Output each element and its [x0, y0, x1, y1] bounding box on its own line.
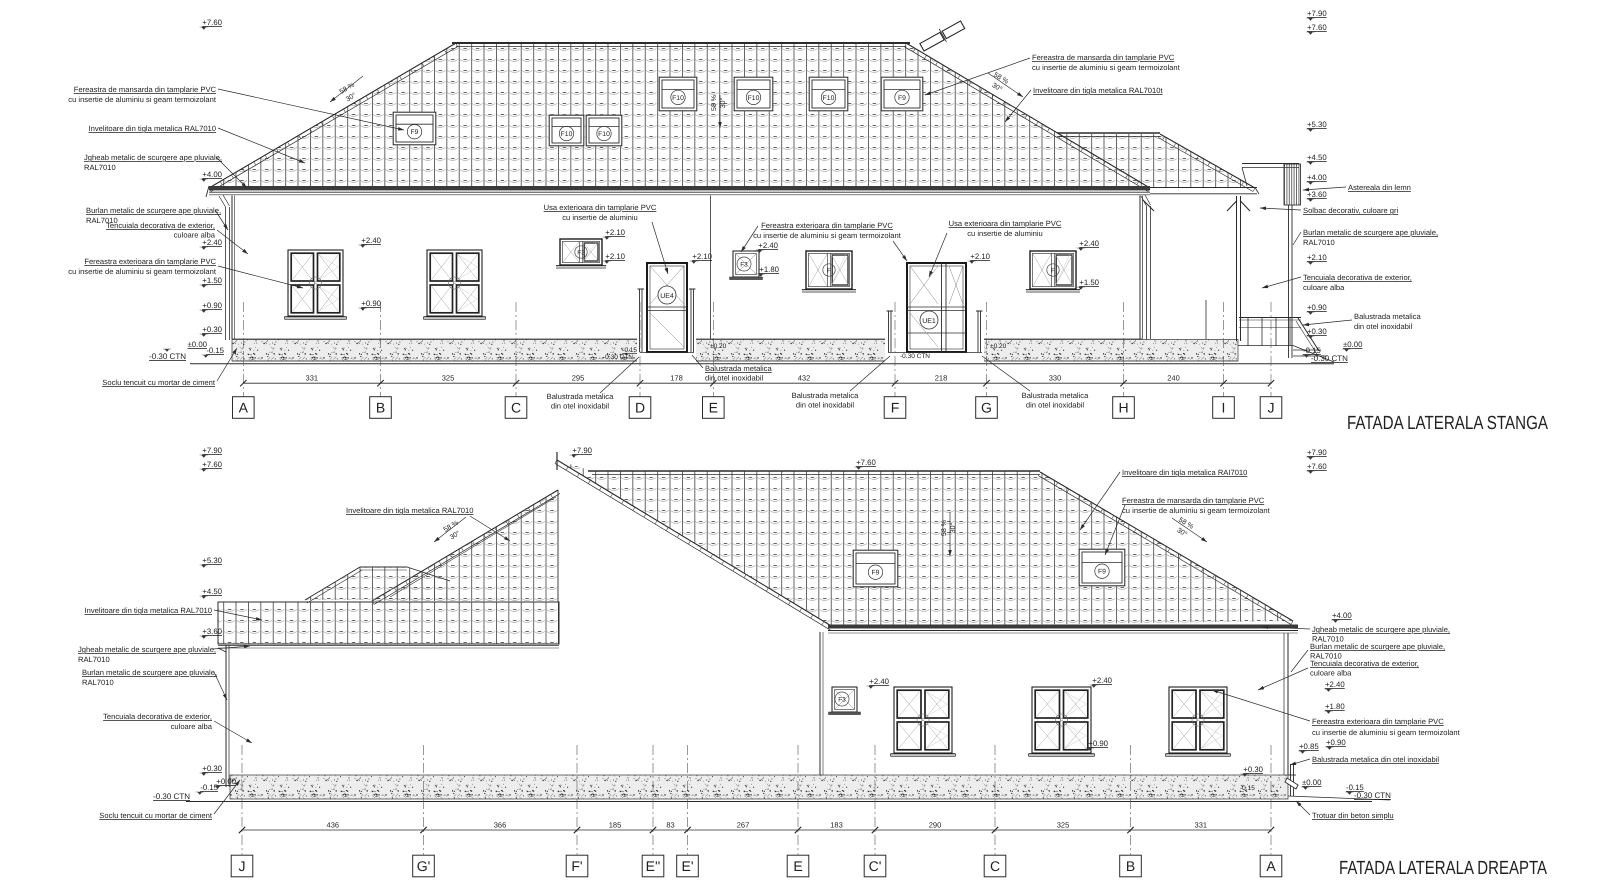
svg-text:-0.30 CTN: -0.30 CTN	[1354, 791, 1391, 800]
svg-text:-0.15: -0.15	[206, 346, 224, 355]
svg-text:+7.60: +7.60	[202, 460, 222, 469]
svg-text:Invelitoare din tigla metalica: Invelitoare din tigla metalica RAL7010	[89, 124, 216, 133]
svg-text:+4.50: +4.50	[202, 587, 222, 596]
svg-text:cu insertie de aluminiu si gea: cu insertie de aluminiu si geam termoizo…	[1032, 63, 1181, 72]
svg-text:F: F	[891, 400, 900, 416]
svg-text:-0.30 CTN: -0.30 CTN	[153, 792, 190, 801]
svg-text:+2.40: +2.40	[869, 677, 889, 686]
svg-text:Trotuar din beton simplu: Trotuar din beton simplu	[1312, 811, 1394, 820]
svg-text:Fereastra de mansarda din tamp: Fereastra de mansarda din tamplarie PVC	[1122, 496, 1265, 505]
svg-text:+4.00: +4.00	[1332, 611, 1352, 620]
svg-text:+3.60: +3.60	[1307, 190, 1327, 199]
svg-text:331: 331	[306, 374, 319, 383]
svg-text:Burlan metalic de scurgere ape: Burlan metalic de scurgere ape pluviale,	[1310, 642, 1445, 651]
svg-text:+0.30: +0.30	[1307, 327, 1327, 336]
svg-text:-0.30 CTN: -0.30 CTN	[1311, 354, 1348, 363]
svg-text:183: 183	[830, 821, 843, 830]
svg-text:B: B	[1126, 858, 1135, 874]
svg-text:+7.60: +7.60	[202, 18, 222, 27]
svg-text:218: 218	[935, 374, 948, 383]
svg-text:E: E	[709, 400, 718, 416]
svg-text:+0.85: +0.85	[1299, 742, 1319, 751]
svg-text:Balustrada metalica din otel i: Balustrada metalica din otel inoxidabil	[1312, 755, 1439, 764]
svg-text:Balustrada metalica: Balustrada metalica	[1354, 312, 1421, 321]
svg-text:cu insertie de aluminiu si gea: cu insertie de aluminiu si geam termoizo…	[1122, 506, 1271, 515]
svg-text:+4.50: +4.50	[1307, 153, 1327, 162]
svg-text:din otel inoxidabil: din otel inoxidabil	[1354, 322, 1413, 331]
svg-text:E': E'	[681, 858, 693, 874]
svg-text:-0.15: -0.15	[200, 783, 218, 792]
svg-text:F: F	[921, 717, 925, 724]
svg-text:+2.40: +2.40	[1092, 676, 1112, 685]
svg-text:RAL7010: RAL7010	[1303, 238, 1335, 247]
svg-text:RAL7010: RAL7010	[78, 655, 110, 664]
svg-text:cu insertie de aluminiu si gea: cu insertie de aluminiu si geam termoizo…	[753, 231, 902, 240]
svg-text:Fereastra exterioara din tampl: Fereastra exterioara din tamplarie PVC	[761, 221, 893, 230]
svg-text:Balustrada metalica: Balustrada metalica	[705, 364, 772, 373]
svg-text:cu insertie de aluminiu si gea: cu insertie de aluminiu si geam termoizo…	[1312, 728, 1461, 737]
svg-text:331: 331	[1195, 821, 1208, 830]
svg-text:B: B	[376, 400, 385, 416]
svg-text:-0.30 CTN: -0.30 CTN	[149, 352, 186, 361]
svg-text:+0.90: +0.90	[202, 301, 222, 310]
svg-text:F: F	[1196, 717, 1200, 724]
svg-text:Balustrada metalica: Balustrada metalica	[1022, 391, 1089, 400]
svg-text:F: F	[453, 280, 457, 287]
svg-text:cu insertie de aluminiu: cu insertie de aluminiu	[967, 229, 1043, 238]
svg-text:G': G'	[417, 858, 431, 874]
svg-text:+1.50: +1.50	[202, 276, 222, 285]
svg-text:H: H	[1118, 400, 1128, 416]
svg-text:185: 185	[609, 821, 622, 830]
svg-text:F: F	[1060, 717, 1064, 724]
svg-text:Invelitoare din tigla metalica: Invelitoare din tigla metalica RAL7010	[346, 506, 473, 515]
svg-text:Tencuiala decorativa de exteri: Tencuiala decorativa de exterior,	[103, 712, 212, 721]
svg-text:din otel inoxidabil: din otel inoxidabil	[1026, 401, 1085, 410]
svg-text:240: 240	[1167, 374, 1180, 383]
svg-text:+2.10: +2.10	[1307, 253, 1327, 262]
svg-text:J: J	[239, 858, 246, 874]
svg-text:Solbac decorativ, culoare gri: Solbac decorativ, culoare gri	[1303, 206, 1399, 215]
svg-text:Burlan metalic de scurgere ape: Burlan metalic de scurgere ape pluviale,	[1303, 228, 1438, 237]
svg-text:C: C	[990, 858, 1000, 874]
svg-text:F10: F10	[672, 95, 684, 102]
svg-text:+5.30: +5.30	[202, 556, 222, 565]
svg-text:325: 325	[1057, 821, 1070, 830]
svg-text:+2.10: +2.10	[605, 228, 625, 237]
svg-text:UE1: UE1	[922, 318, 936, 325]
svg-text:-0.30 CTN: -0.30 CTN	[900, 353, 930, 360]
svg-text:+3.60: +3.60	[202, 627, 222, 636]
svg-text:C: C	[511, 400, 521, 416]
svg-text:+7.90: +7.90	[572, 446, 592, 455]
svg-text:Fereastra de mansarda din tamp: Fereastra de mansarda din tamplarie PVC	[1032, 53, 1175, 62]
svg-text:295: 295	[572, 374, 585, 383]
svg-text:RAL7010: RAL7010	[84, 163, 116, 172]
svg-text:+1.80: +1.80	[759, 265, 779, 274]
svg-text:Tencuiala decorativa de exteri: Tencuiala decorativa de exterior,	[1310, 659, 1419, 668]
svg-text:+0.30: +0.30	[202, 764, 222, 773]
svg-text:Soclu tencuit cu mortar de cim: Soclu tencuit cu mortar de ciment	[99, 811, 213, 820]
svg-text:F9: F9	[898, 95, 906, 102]
svg-text:Astereala din lemn: Astereala din lemn	[1348, 183, 1411, 192]
svg-text:+7.90: +7.90	[1307, 9, 1327, 18]
svg-text:-0.15: -0.15	[622, 347, 637, 354]
svg-text:F10: F10	[561, 131, 573, 138]
svg-text:F3: F3	[740, 262, 748, 269]
svg-text:+4.00: +4.00	[1307, 173, 1327, 182]
svg-text:FATADA LATERALA DREAPTA: FATADA LATERALA DREAPTA	[1339, 858, 1547, 879]
svg-text:58 %: 58 %	[941, 520, 948, 536]
svg-text:G: G	[981, 400, 992, 416]
svg-text:432: 432	[798, 374, 811, 383]
svg-text:F3: F3	[838, 697, 846, 704]
svg-text:±0.00: ±0.00	[188, 340, 208, 349]
svg-text:Burlan metalic de scurgere ape: Burlan metalic de scurgere ape pluviale,	[86, 206, 221, 215]
svg-text:267: 267	[737, 821, 750, 830]
svg-text:Tencuiala decorativa de exteri: Tencuiala decorativa de exterior,	[1303, 273, 1412, 282]
svg-text:290: 290	[929, 821, 942, 830]
svg-text:330: 330	[1049, 374, 1062, 383]
svg-text:+0.30: +0.30	[202, 325, 222, 334]
svg-text:+0.90: +0.90	[361, 299, 381, 308]
svg-text:E: E	[793, 858, 802, 874]
svg-text:-0.30 CTN: -0.30 CTN	[603, 354, 633, 361]
svg-text:culoare alba: culoare alba	[1303, 283, 1345, 292]
svg-text:Balustrada metalica: Balustrada metalica	[792, 391, 859, 400]
svg-text:J: J	[1268, 400, 1275, 416]
svg-text:366: 366	[494, 821, 507, 830]
svg-text:+0.90: +0.90	[1326, 738, 1346, 747]
svg-text:+0.90: +0.90	[1088, 739, 1108, 748]
svg-text:culoare alba: culoare alba	[171, 722, 213, 731]
svg-text:Fereastra de mansarda din tamp: Fereastra de mansarda din tamplarie PVC	[74, 85, 217, 94]
svg-text:cu insertie de aluminiu: cu insertie de aluminiu	[562, 213, 638, 222]
svg-text:UE4: UE4	[660, 293, 674, 300]
svg-text:30°: 30°	[950, 523, 957, 534]
svg-text:±0.00: ±0.00	[1343, 340, 1363, 349]
svg-text:+7.90: +7.90	[1307, 448, 1327, 457]
svg-text:cu insertie de aluminiu si gea: cu insertie de aluminiu si geam termoizo…	[68, 95, 217, 104]
svg-text:E'': E''	[646, 858, 661, 874]
svg-text:+0.00: +0.00	[216, 777, 236, 786]
svg-text:±0.20: ±0.20	[990, 343, 1007, 350]
svg-text:F10: F10	[823, 95, 835, 102]
svg-text:A: A	[1266, 858, 1276, 874]
svg-text:Invelitoare din tigla metalica: Invelitoare din tigla metalica RAL7010	[85, 606, 212, 615]
svg-text:+2.40: +2.40	[1079, 239, 1099, 248]
svg-text:RAL7010: RAL7010	[82, 678, 114, 687]
svg-text:+0.30: +0.30	[1243, 765, 1263, 774]
svg-text:325: 325	[442, 374, 455, 383]
svg-text:D: D	[635, 400, 645, 416]
svg-text:+7.90: +7.90	[202, 446, 222, 455]
svg-text:30°: 30°	[720, 98, 727, 109]
svg-text:Fereastra exterioara din tampl: Fereastra exterioara din tamplarie PVC	[1312, 717, 1444, 726]
svg-text:I: I	[1222, 400, 1226, 416]
svg-text:F10: F10	[598, 131, 610, 138]
svg-text:F9: F9	[1098, 569, 1106, 576]
svg-text:±0.00: ±0.00	[1302, 778, 1322, 787]
svg-text:+2.40: +2.40	[1325, 680, 1345, 689]
svg-text:F': F'	[571, 858, 582, 874]
svg-text:C': C'	[869, 858, 882, 874]
svg-text:din otel inoxidabil: din otel inoxidabil	[551, 402, 610, 411]
svg-text:+2.10: +2.10	[692, 252, 712, 261]
svg-text:+0.90: +0.90	[1307, 303, 1327, 312]
svg-text:culoare alba: culoare alba	[174, 230, 216, 239]
svg-text:FATADA LATERALA STANGA: FATADA LATERALA STANGA	[1347, 413, 1548, 434]
svg-text:+7.60: +7.60	[856, 458, 876, 467]
svg-text:cu insertie de aluminiu si gea: cu insertie de aluminiu si geam termoizo…	[68, 267, 217, 276]
svg-text:58 %: 58 %	[711, 95, 718, 111]
svg-text:F3: F3	[577, 249, 585, 256]
svg-text:din otel inoxidabil: din otel inoxidabil	[796, 401, 855, 410]
svg-text:culoare alba: culoare alba	[1310, 669, 1352, 678]
svg-text:Usa exterioara din tamplarie P: Usa exterioara din tamplarie PVC	[544, 203, 657, 212]
svg-text:Jgheab metalic de scurgere ape: Jgheab metalic de scurgere ape pluviale,	[84, 153, 222, 162]
svg-text:±0.20: ±0.20	[710, 343, 727, 350]
svg-text:-0.15: -0.15	[1240, 785, 1255, 792]
svg-text:+2.10: +2.10	[970, 252, 990, 261]
svg-text:+2.10: +2.10	[605, 252, 625, 261]
svg-text:F: F	[314, 280, 318, 287]
svg-text:Balustrada metalica: Balustrada metalica	[547, 392, 614, 401]
svg-text:+1.50: +1.50	[1079, 278, 1099, 287]
svg-text:436: 436	[327, 821, 340, 830]
svg-text:F: F	[827, 267, 831, 274]
svg-text:Jgheab metalic de scurgere ape: Jgheab metalic de scurgere ape pluviale,	[78, 645, 216, 654]
svg-text:+1.80: +1.80	[1325, 702, 1345, 711]
svg-text:178: 178	[670, 374, 683, 383]
svg-text:Usa exterioara din tamplarie P: Usa exterioara din tamplarie PVC	[949, 219, 1062, 228]
svg-text:Invelitoare din tigla metalica: Invelitoare din tigla metalica RAI7010	[1122, 468, 1247, 477]
svg-text:Fereastra exterioara din tampl: Fereastra exterioara din tamplarie PVC	[84, 257, 216, 266]
svg-text:Soclu tencuit cu mortar de cim: Soclu tencuit cu mortar de ciment	[102, 378, 216, 387]
svg-text:+5.30: +5.30	[1307, 120, 1327, 129]
svg-text:Burlan metalic de scurgere ape: Burlan metalic de scurgere ape pluviale,	[82, 668, 217, 677]
svg-text:Invelitoare din tigla metalica: Invelitoare din tigla metalica RAL7010t	[1033, 86, 1163, 95]
svg-text:F: F	[1051, 267, 1055, 274]
svg-text:+2.40: +2.40	[758, 241, 778, 250]
svg-text:+2.40: +2.40	[361, 236, 381, 245]
svg-text:+4.00: +4.00	[202, 170, 222, 179]
svg-text:Tencuiala decorativa de exteri: Tencuiala decorativa de exterior,	[106, 221, 215, 230]
svg-text:83: 83	[666, 821, 674, 830]
svg-text:+2.40: +2.40	[202, 238, 222, 247]
svg-text:din otel inoxidabil: din otel inoxidabil	[705, 374, 764, 383]
svg-text:+7.60: +7.60	[1307, 462, 1327, 471]
svg-text:Jgheab metalic de scurgere ape: Jgheab metalic de scurgere ape pluviale,	[1312, 625, 1450, 634]
svg-text:+7.60: +7.60	[1307, 23, 1327, 32]
svg-text:F9: F9	[411, 129, 419, 136]
svg-text:F9: F9	[872, 570, 880, 577]
svg-text:A: A	[239, 400, 249, 416]
svg-text:F10: F10	[748, 95, 760, 102]
